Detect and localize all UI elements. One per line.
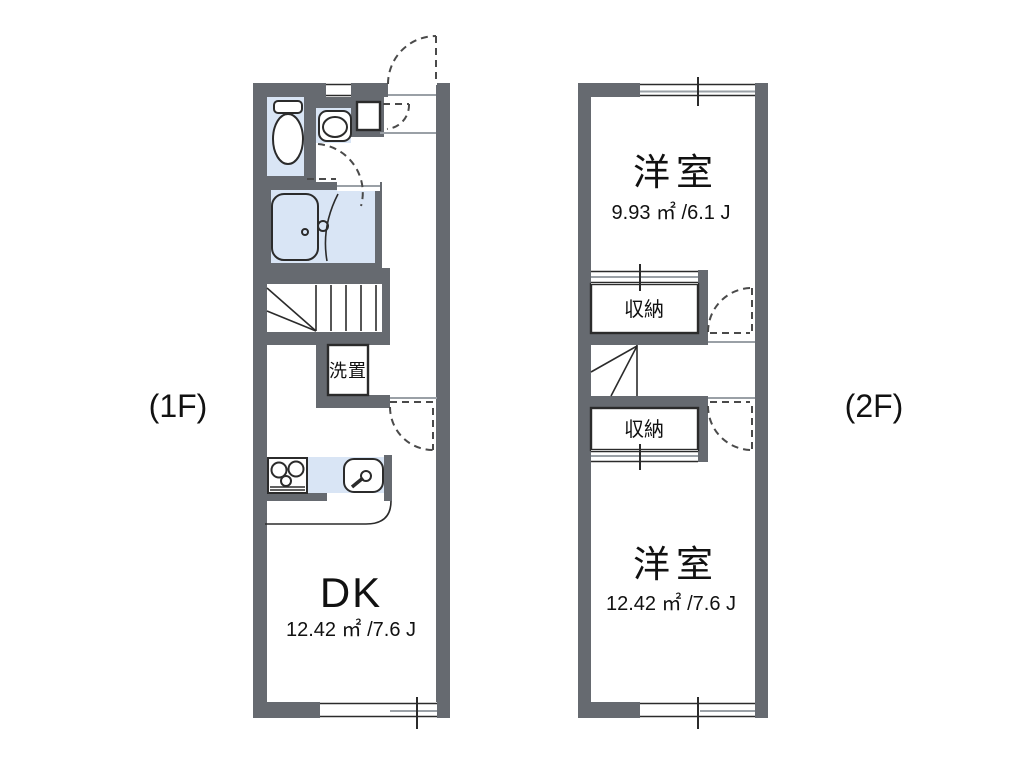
wall [316, 395, 390, 408]
floorplan-svg: 洗置 DK 12.42 ㎡ /7.6 J [0, 0, 1016, 772]
floor2-caption: (2F) [845, 388, 904, 424]
entry-inner-door-arc [387, 104, 409, 129]
wall [263, 493, 327, 501]
bedroom-lower-name: 洋室 [633, 544, 719, 585]
dk-room-name: DK [320, 569, 382, 616]
bedroom-upper-name: 洋室 [633, 152, 719, 193]
wall [578, 702, 640, 718]
wall [755, 702, 768, 718]
bedroom-upper-door-arc [708, 288, 752, 332]
wall [253, 268, 390, 284]
floorplan-canvas: 洗置 DK 12.42 ㎡ /7.6 J [0, 0, 1016, 772]
wall [578, 333, 708, 345]
window-1f-south [320, 697, 437, 729]
dk-door-arc [390, 407, 433, 450]
window-2f-north [640, 77, 755, 106]
wall [351, 83, 388, 97]
floor-2f: 洋室 9.93 ㎡ /6.1 J 収納 収納 洋室 12.42 ㎡ /7.6 J [578, 77, 768, 729]
window-2f-south [640, 697, 755, 729]
floor-1f: 洗置 DK 12.42 ㎡ /7.6 J [253, 36, 450, 729]
wall [436, 85, 450, 718]
dk-room-area: 12.42 ㎡ /7.6 J [286, 617, 416, 641]
closet-upper-sliding-door [591, 264, 698, 291]
wall [304, 96, 316, 184]
bedroom-lower-area: 12.42 ㎡ /7.6 J [606, 591, 736, 615]
bedroom-upper-area: 9.93 ㎡ /6.1 J [612, 200, 731, 224]
bath-room-floor [271, 190, 375, 263]
wall [253, 83, 267, 718]
wall [698, 270, 708, 345]
wall [578, 396, 708, 408]
wall [384, 455, 392, 501]
toilet-bowl [273, 114, 303, 164]
shoe-cabinet [357, 102, 380, 130]
toilet-tank [274, 101, 302, 113]
closet-upper-label: 収納 [624, 298, 664, 321]
entrance-door-arc [388, 36, 436, 84]
stairs-2f [591, 345, 637, 396]
wall [755, 85, 768, 718]
wall [316, 96, 351, 108]
wall [437, 702, 450, 718]
wall [698, 396, 708, 462]
laundry-label: 洗置 [329, 361, 367, 381]
closet-lower-label: 収納 [624, 418, 664, 441]
wall [253, 702, 320, 718]
bedroom-lower-door-arc [708, 406, 752, 450]
floor1-caption: (1F) [149, 388, 208, 424]
stairs-1f [267, 285, 376, 331]
wall [253, 332, 390, 345]
kitchen-sink [344, 459, 383, 492]
kitchen-floor-edge [265, 501, 391, 524]
closet-lower-sliding-door [591, 444, 698, 470]
